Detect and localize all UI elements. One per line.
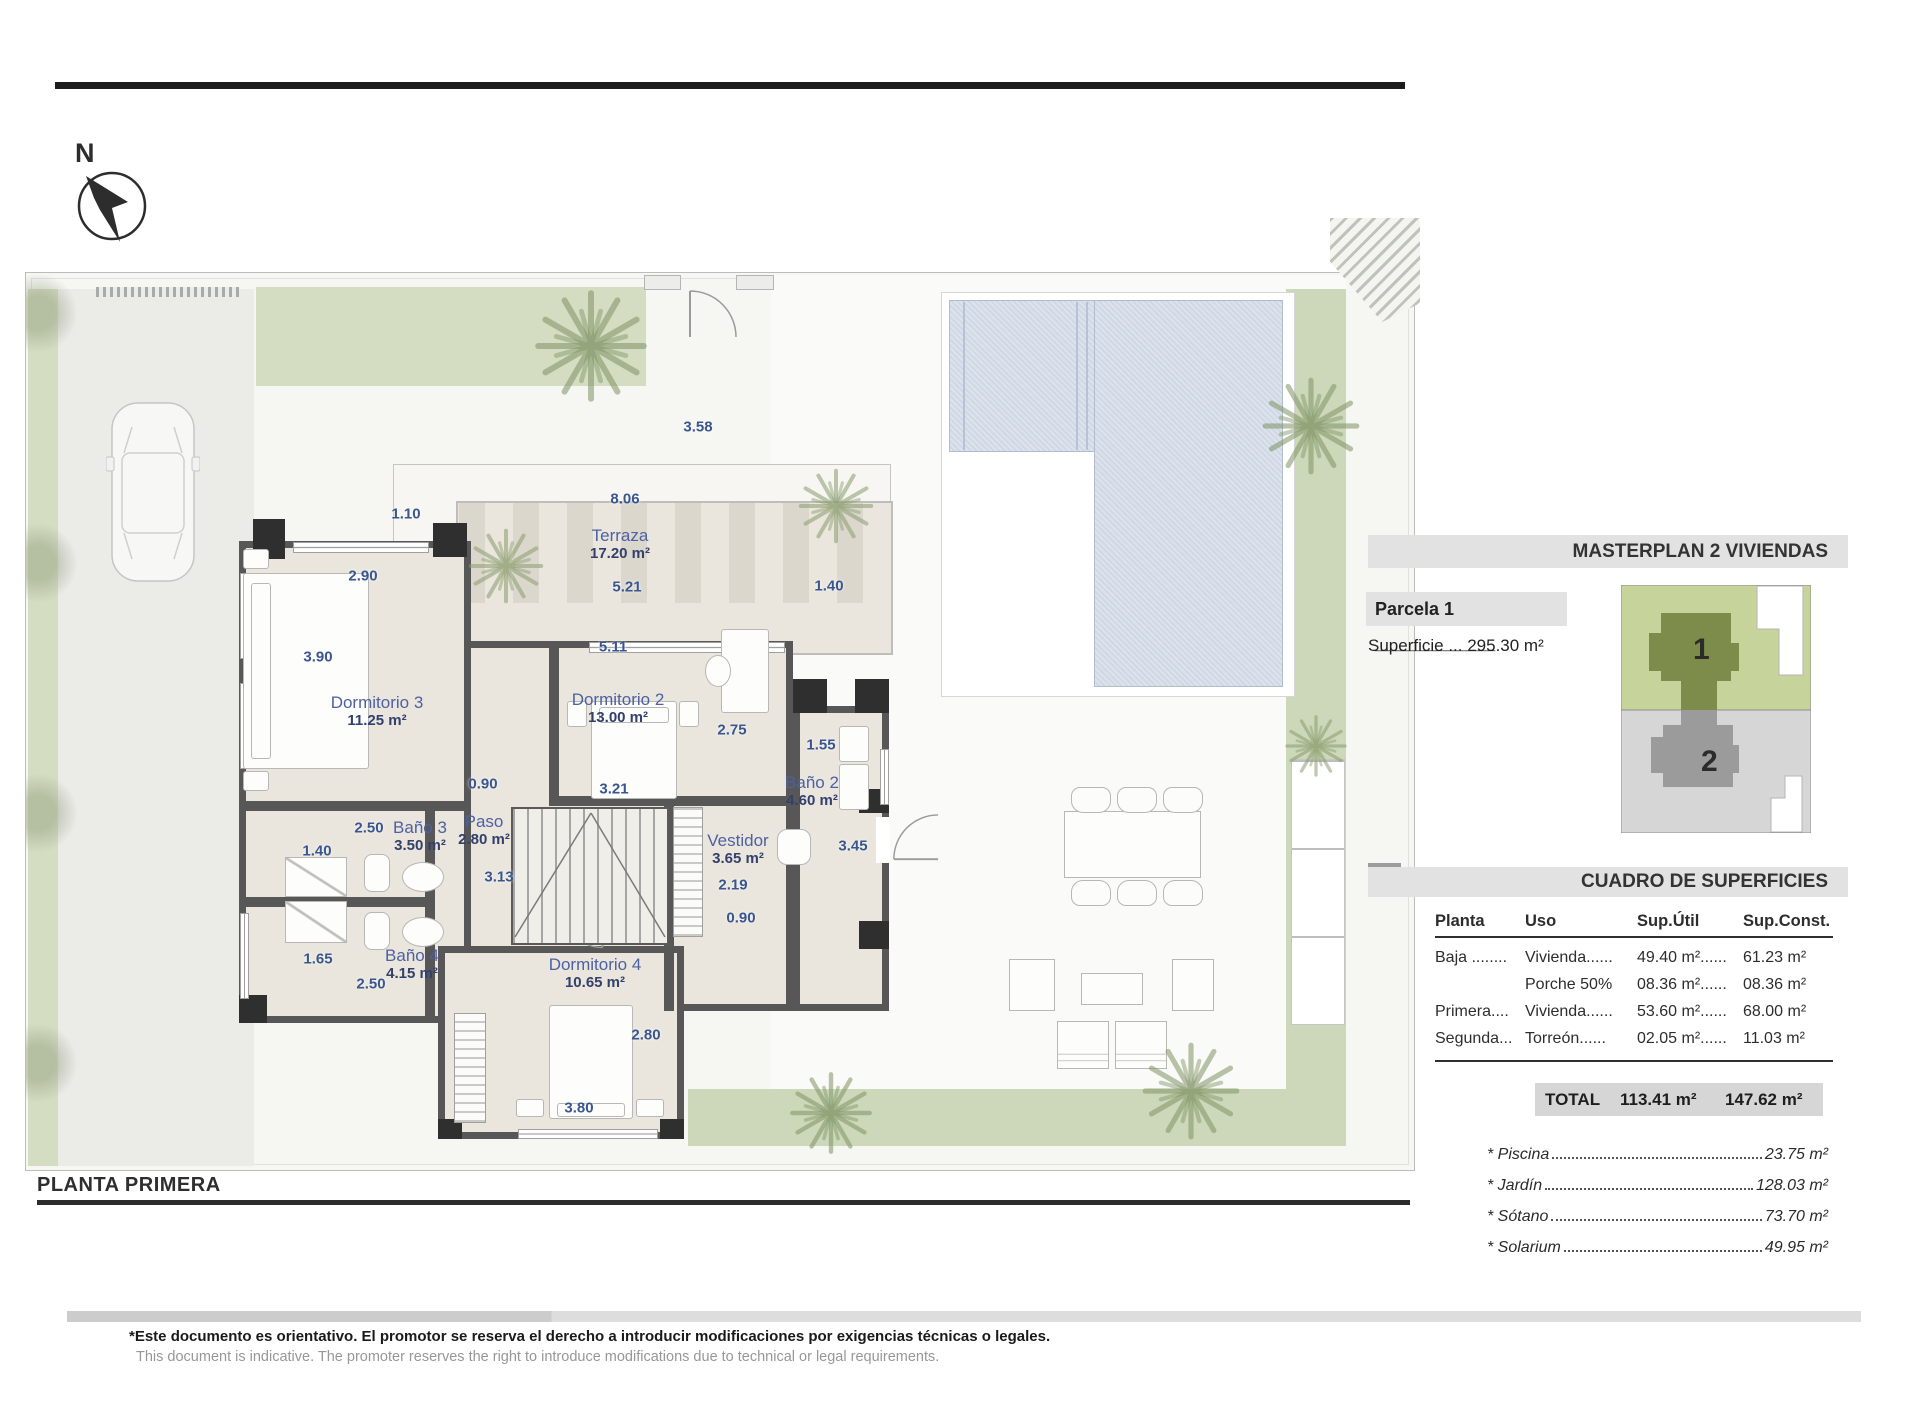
room-label-terraza: Terraza 17.20 m² xyxy=(590,526,650,562)
cell: Baja ........ xyxy=(1435,944,1525,971)
north-arrow-icon xyxy=(72,160,148,244)
dot-leader xyxy=(1564,1250,1762,1252)
extra-value: 73.70 m² xyxy=(1765,1208,1828,1226)
dining-chair xyxy=(1117,880,1157,906)
masterplan-thumbnail: 1 2 xyxy=(1621,585,1811,833)
vanity xyxy=(839,764,869,810)
floorplan-sheet: N xyxy=(0,0,1920,1406)
total-label: TOTAL xyxy=(1545,1083,1600,1116)
unit-2-number: 2 xyxy=(1701,745,1718,778)
cell xyxy=(1435,971,1525,998)
dimension-label: 1.40 xyxy=(814,578,843,595)
room-label-bano2: Baño 2 4.60 m² xyxy=(785,773,839,809)
dimension-label: 3.90 xyxy=(303,649,332,666)
col-header: Sup.Const. xyxy=(1743,908,1833,936)
cell: Primera.... xyxy=(1435,998,1525,1025)
dimension-label: 0.90 xyxy=(726,910,755,927)
cell: 08.36 m²...... xyxy=(1637,971,1743,998)
plan-title-rule xyxy=(37,1200,1410,1205)
dimension-label: 3.80 xyxy=(564,1100,593,1117)
coffee-table xyxy=(1081,973,1143,1005)
washbasin xyxy=(402,862,444,892)
toilet xyxy=(364,912,390,950)
room-name: Dormitorio 4 xyxy=(549,955,642,974)
shower xyxy=(839,726,869,762)
room-name: Baño 3 xyxy=(393,818,447,837)
car-icon xyxy=(106,397,200,587)
pool-step-line xyxy=(1076,302,1078,450)
extra-value: 128.03 m² xyxy=(1756,1177,1828,1195)
entry-door-arc xyxy=(686,287,738,339)
dimension-label: 8.06 xyxy=(610,491,639,508)
gate-post xyxy=(736,275,774,290)
palm-tree-icon xyxy=(796,466,876,546)
room-label-paso: Paso 2.80 m² xyxy=(458,812,510,848)
table-row: Baja ........ Vivienda...... 49.40 m²...… xyxy=(1435,944,1833,971)
staircase xyxy=(511,807,669,945)
dining-table xyxy=(1064,811,1201,878)
extras-list: * Piscina 23.75 m² * Jardín 128.03 m² * … xyxy=(1487,1146,1828,1270)
table-header-row: Planta Uso Sup.Útil Sup.Const. xyxy=(1435,908,1833,936)
stair-direction-lines xyxy=(513,809,667,943)
room-label-dormitorio3: Dormitorio 3 11.25 m² xyxy=(331,693,424,729)
room-name: Terraza xyxy=(590,526,650,545)
room-area: 13.00 m² xyxy=(572,709,665,726)
dimension-label: 1.40 xyxy=(302,843,331,860)
cell: Porche 50% xyxy=(1525,971,1637,998)
palm-tree-icon xyxy=(1139,1039,1243,1143)
cell: 53.60 m²...... xyxy=(1637,998,1743,1025)
washbasin xyxy=(402,917,444,947)
cell: Vivienda...... xyxy=(1525,944,1637,971)
pillow xyxy=(251,583,271,759)
room-area: 10.65 m² xyxy=(549,974,642,991)
dimension-label: 3.58 xyxy=(683,419,712,436)
parcela-superficie: Superficie ... 295.30 m² xyxy=(1368,636,1544,656)
pool-step-line xyxy=(963,302,965,450)
sun-lounger xyxy=(1057,1021,1109,1069)
room-label-dormitorio2: Dormitorio 2 13.00 m² xyxy=(572,690,665,726)
dimension-label: 2.90 xyxy=(348,568,377,585)
toilet xyxy=(364,854,390,892)
table-row: Primera.... Vivienda...... 53.60 m².....… xyxy=(1435,998,1833,1025)
pool-main xyxy=(1094,300,1283,687)
door-gap xyxy=(876,817,890,863)
window xyxy=(880,749,889,805)
extra-label: * Sótano xyxy=(1487,1208,1548,1226)
extra-label: * Solarium xyxy=(1487,1239,1561,1257)
extra-label: * Jardín xyxy=(1487,1177,1542,1195)
cell: 61.23 m² xyxy=(1743,944,1833,971)
window xyxy=(518,1129,658,1139)
nightstand xyxy=(243,549,269,569)
dimension-label: 0.90 xyxy=(468,776,497,793)
dining-chair xyxy=(1163,880,1203,906)
window xyxy=(293,542,429,553)
footer-separator xyxy=(67,1311,1861,1322)
dot-leader xyxy=(1551,1219,1761,1221)
vehicle-gate xyxy=(96,287,239,297)
wardrobe xyxy=(673,807,703,937)
masterplan-title: MASTERPLAN 2 VIVIENDAS xyxy=(1368,535,1848,568)
cell: 11.03 m² xyxy=(1743,1025,1833,1052)
list-item: * Piscina 23.75 m² xyxy=(1487,1146,1828,1177)
extra-label: * Piscina xyxy=(1487,1146,1549,1164)
nightstand xyxy=(679,701,699,727)
dimension-label: 2.19 xyxy=(718,877,747,894)
dimension-label: 3.21 xyxy=(599,781,628,798)
list-item: * Sótano 73.70 m² xyxy=(1487,1208,1828,1239)
palm-tree-icon xyxy=(466,526,546,606)
dot-leader xyxy=(1545,1188,1753,1190)
wall-post xyxy=(793,679,827,713)
col-header: Sup.Útil xyxy=(1637,908,1743,936)
table-row: Segunda... Torreón...... 02.05 m²...... … xyxy=(1435,1025,1833,1052)
cell: 68.00 m² xyxy=(1743,998,1833,1025)
list-item: * Jardín 128.03 m² xyxy=(1487,1177,1828,1208)
desk-chair xyxy=(705,655,731,687)
wall xyxy=(239,801,471,811)
unit-1-number: 1 xyxy=(1693,633,1710,666)
palm-tree-icon xyxy=(1259,374,1363,478)
total-row: TOTAL 113.41 m² 147.62 m² xyxy=(1535,1083,1823,1116)
cell: 49.40 m²...... xyxy=(1637,944,1743,971)
bathtub xyxy=(777,829,811,865)
armchair xyxy=(1172,959,1214,1011)
dimension-label: 3.13 xyxy=(484,869,513,886)
room-label-vestidor: Vestidor 3.65 m² xyxy=(707,831,768,867)
sofa xyxy=(1009,959,1055,1011)
col-header: Planta xyxy=(1435,908,1525,936)
window xyxy=(240,913,249,999)
disclaimer-es: *Este documento es orientativo. El promo… xyxy=(129,1328,1050,1345)
room-name: Dormitorio 3 xyxy=(331,693,424,712)
table-rule xyxy=(1435,1060,1833,1062)
room-area: 11.25 m² xyxy=(331,712,424,729)
palm-tree-icon xyxy=(787,1069,875,1157)
cell: 02.05 m²...... xyxy=(1637,1025,1743,1052)
closet xyxy=(285,901,347,943)
fence-panels xyxy=(1291,759,1345,1025)
wall-post xyxy=(239,995,267,1023)
dimension-label: 1.10 xyxy=(391,506,420,523)
room-name: Baño 2 xyxy=(785,773,839,792)
room-name: Vestidor xyxy=(707,831,768,850)
cuadro-title: CUADRO DE SUPERFICIES xyxy=(1368,867,1848,897)
door-arc xyxy=(890,813,940,863)
palm-tree-icon xyxy=(1283,713,1349,779)
dimension-label: 5.11 xyxy=(599,639,627,656)
wall-post xyxy=(433,523,467,557)
palm-tree-icon xyxy=(531,286,651,406)
list-item: * Solarium 49.95 m² xyxy=(1487,1239,1828,1270)
dining-chair xyxy=(1117,787,1157,813)
total-util: 113.41 m² xyxy=(1620,1083,1697,1116)
room-area: 4.15 m² xyxy=(385,965,439,982)
dimension-label: 2.75 xyxy=(717,722,746,739)
room-label-dormitorio4: Dormitorio 4 10.65 m² xyxy=(549,955,642,991)
wall xyxy=(549,648,559,806)
room-name: Baño 4 xyxy=(385,946,439,965)
wardrobe xyxy=(454,1013,486,1123)
dining-chair xyxy=(1071,880,1111,906)
wall-post xyxy=(855,679,889,713)
col-header: Uso xyxy=(1525,908,1637,936)
extra-value: 49.95 m² xyxy=(1765,1239,1828,1257)
dot-leader xyxy=(1552,1157,1762,1159)
dining-chair xyxy=(1071,787,1111,813)
dimension-label: 1.65 xyxy=(303,951,332,968)
dimension-label: 5.21 xyxy=(612,579,641,596)
parcela-label: Parcela 1 ____________ xyxy=(1366,592,1567,626)
dining-chair xyxy=(1163,787,1203,813)
room-area: 2.80 m² xyxy=(458,831,510,848)
wall-post xyxy=(859,921,889,949)
top-rule xyxy=(55,82,1405,89)
cell: 08.36 m² xyxy=(1743,971,1833,998)
room-name: Paso xyxy=(458,812,510,831)
room-area: 3.65 m² xyxy=(707,850,768,867)
room-label-bano4: Baño 4 4.15 m² xyxy=(385,946,439,982)
dimension-label: 2.50 xyxy=(354,820,383,837)
table-row: Porche 50% 08.36 m²...... 08.36 m² xyxy=(1435,971,1833,998)
closet xyxy=(285,857,347,897)
surfaces-table: Planta Uso Sup.Útil Sup.Const. Baja ....… xyxy=(1435,908,1833,1062)
pool-step-line xyxy=(1086,302,1088,450)
nightstand xyxy=(516,1099,544,1117)
room-area: 3.50 m² xyxy=(393,837,447,854)
dimension-label: 1.55 xyxy=(806,737,835,754)
room-label-bano3: Baño 3 3.50 m² xyxy=(393,818,447,854)
dimension-label: 3.45 xyxy=(838,838,867,855)
dimension-label: 2.50 xyxy=(356,976,385,993)
room-area: 17.20 m² xyxy=(590,545,650,562)
cell: Segunda... xyxy=(1435,1025,1525,1052)
dimension-label: 2.80 xyxy=(631,1027,660,1044)
cell: Vivienda...... xyxy=(1525,998,1637,1025)
site-plan: Terraza 17.20 m² Dormitorio 3 11.25 m² D… xyxy=(25,272,1415,1171)
wall-post xyxy=(660,1119,684,1139)
disclaimer-en: This document is indicative. The promote… xyxy=(136,1349,939,1365)
nightstand xyxy=(243,771,269,791)
extra-value: 23.75 m² xyxy=(1765,1146,1828,1164)
total-const: 147.62 m² xyxy=(1725,1083,1803,1116)
plan-title: PLANTA PRIMERA xyxy=(37,1174,221,1197)
nightstand xyxy=(636,1099,664,1117)
cell: Torreón...... xyxy=(1525,1025,1637,1052)
room-name: Dormitorio 2 xyxy=(572,690,665,709)
room-area: 4.60 m² xyxy=(785,792,839,809)
